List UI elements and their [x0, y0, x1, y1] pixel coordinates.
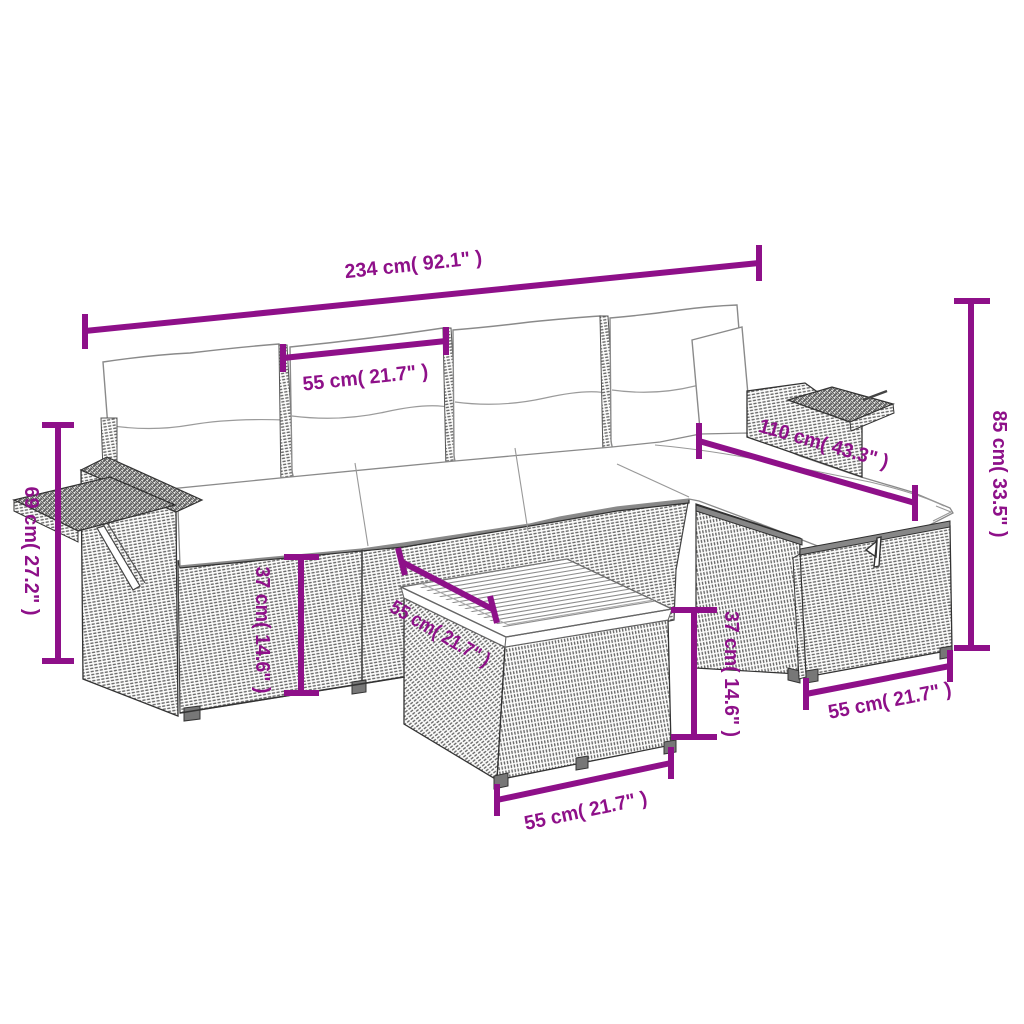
svg-text:37 cm( 14.6" ): 37 cm( 14.6" ): [720, 611, 742, 737]
svg-text:69 cm( 27.2" ): 69 cm( 27.2" ): [20, 487, 42, 616]
svg-text:37 cm( 14.6" ): 37 cm( 14.6" ): [251, 567, 273, 694]
svg-text:85 cm( 33.5" ): 85 cm( 33.5" ): [988, 411, 1010, 538]
